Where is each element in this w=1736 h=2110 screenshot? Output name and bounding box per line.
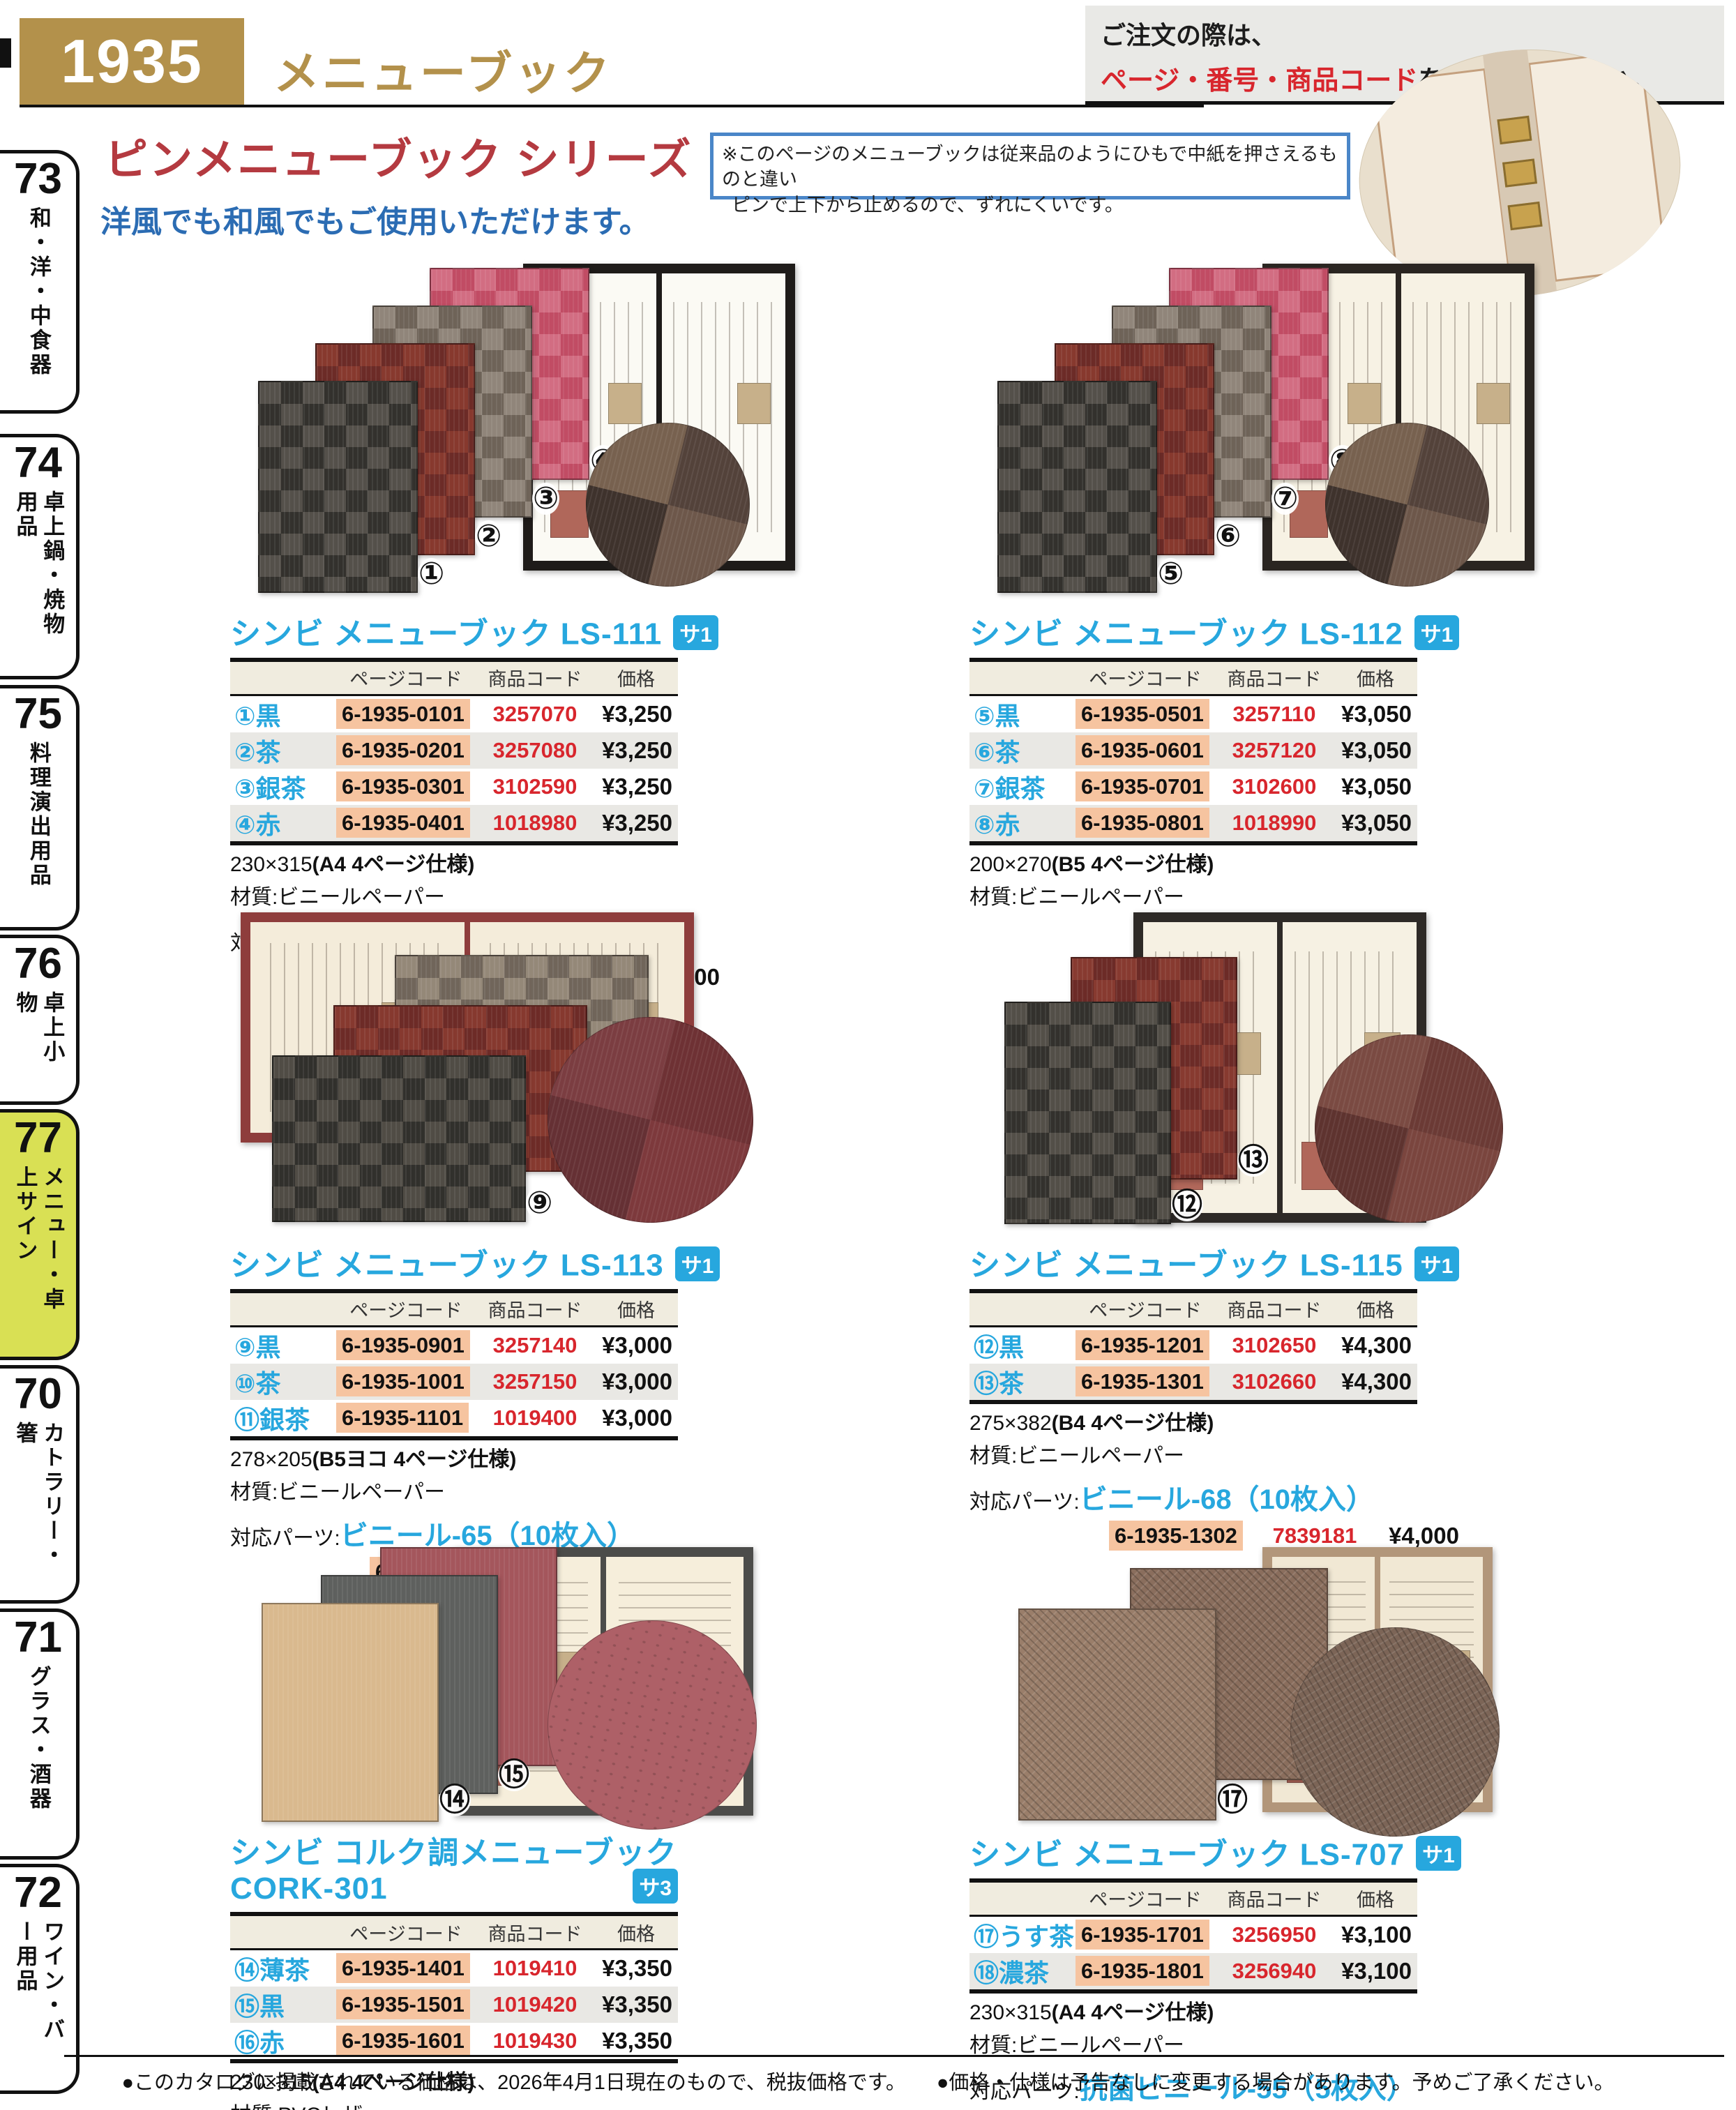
header-page-code: ページコード (1075, 664, 1215, 691)
header-item-code: 商品コード (476, 1919, 594, 1946)
sidebar-tab-70: 70カトラリー・箸 (0, 1365, 80, 1604)
footer-divider (64, 2055, 1724, 2057)
menu-cover-⑭ (262, 1603, 439, 1822)
row-price: ¥3,250 (594, 810, 678, 836)
sidebar-tab-77: 77メニュー・卓上サイン (0, 1109, 80, 1360)
header-price: 価格 (594, 1295, 678, 1322)
header-page-code: ページコード (336, 664, 476, 691)
series-title: ピンメニューブック シリーズ (105, 124, 693, 187)
size-spec: 230×315(A4 4ページ仕様) (230, 851, 788, 878)
row-color-label: ⑮黒 (230, 1987, 336, 2023)
figure-number-label: ⑰ (1216, 1784, 1248, 1816)
row-item-code: 3257070 (476, 702, 594, 727)
tab-number: 71 (14, 1616, 62, 1659)
figure-number-label: ② (475, 520, 502, 552)
row-page-code: 6-1935-0401 (336, 811, 470, 836)
row-color-label: ④赤 (230, 805, 336, 841)
table-header-row: ページコード 商品コード 価格 (230, 1293, 678, 1327)
price-table: ページコード 商品コード 価格 ⑰うす茶6-1935-17013256950¥3… (969, 1878, 1417, 1994)
parts-page-code: 6-1935-1302 (1109, 1523, 1243, 1548)
product-title: シンビ メニューブック LS-707 (969, 1837, 1405, 1871)
material-spec: 材質:PVCレザー (230, 2102, 788, 2110)
tab-label: 卓上鍋・焼物用品 (11, 490, 66, 648)
product-title-row: シンビ コルク調メニューブック CORK-301サ3 (230, 1823, 788, 1906)
row-color-label: ⑦銀茶 (969, 769, 1075, 805)
header-item-code: 商品コード (476, 1295, 594, 1322)
menu-cover-⑨ (272, 1055, 526, 1222)
table-row: ⑭薄茶6-1935-14011019410¥3,350 (230, 1950, 678, 1987)
tab-label: グラス・酒器 (24, 1665, 52, 1828)
tab-number: 75 (14, 693, 62, 736)
material-spec: 材質:ビニールペーパー (969, 884, 1527, 911)
product-card-6: ⑱⑰ シンビ メニューブック LS-707サ1 ページコード 商品コード 価格 … (969, 1547, 1527, 2110)
row-item-code: 3257110 (1215, 702, 1334, 727)
header-price: 価格 (1334, 1885, 1417, 1912)
menu-cover-① (258, 381, 418, 593)
size-spec: 230×315(A4 4ページ仕様) (969, 1999, 1527, 2026)
order-note-red: ページ・番号・商品コード (1101, 66, 1418, 96)
tab-label: 料理演出用品 (24, 741, 52, 899)
row-price: ¥3,050 (1334, 737, 1417, 764)
material-spec: 材質:ビニールペーパー (230, 1479, 788, 1506)
product-photo: ⑱⑰ (969, 1547, 1527, 1819)
header-page-code: ページコード (336, 1919, 476, 1946)
row-color-label: ⑨黒 (230, 1327, 336, 1364)
header-page-code: ページコード (1075, 1885, 1215, 1912)
table-header-row: ページコード 商品コード 価格 (969, 1293, 1417, 1327)
price-table: ページコード 商品コード 価格 ⑤黒6-1935-05013257110¥3,0… (969, 658, 1417, 845)
tab-label: カトラリー・箸 (11, 1422, 66, 1572)
tab-number: 76 (14, 942, 62, 986)
row-item-code: 1018980 (476, 811, 594, 836)
table-row: ⑬茶6-1935-13013102660¥4,300 (969, 1364, 1417, 1400)
row-page-code: 6-1935-0101 (336, 702, 470, 727)
row-item-code: 3257150 (476, 1369, 594, 1394)
table-row: ⑨黒6-1935-09013257140¥3,000 (230, 1327, 678, 1364)
catalog-page: 1935 メニューブック ご注文の際は、 ページ・番号・商品コードをご記入くださ… (0, 0, 1736, 2110)
tab-number: 72 (14, 1871, 62, 1915)
sidebar-tab-76: 76卓上小物 (0, 935, 80, 1105)
header-price: 価格 (1334, 664, 1417, 691)
product-card-1: ④③②① シンビ メニューブック LS-111サ1 ページコード 商品コード 価… (230, 264, 788, 995)
figure-number-label: ⑤ (1157, 558, 1184, 590)
size-spec: 275×382(B4 4ページ仕様) (969, 1410, 1527, 1437)
table-row: ④赤6-1935-04011018980¥3,250 (230, 805, 678, 841)
table-row: ⑥茶6-1935-06013257120¥3,050 (969, 732, 1417, 769)
table-row: ②茶6-1935-02013257080¥3,250 (230, 732, 678, 769)
menu-cover-⑰ (1018, 1608, 1216, 1821)
row-page-code: 6-1935-1801 (1075, 1959, 1209, 1984)
header-item-code: 商品コード (1215, 664, 1334, 691)
row-page-code: 6-1935-1701 (1075, 1922, 1209, 1947)
row-item-code: 3257120 (1215, 738, 1334, 763)
row-item-code: 1019430 (476, 2028, 594, 2054)
product-photo: ⑪⑩⑨ (230, 912, 788, 1230)
product-title-row: シンビ メニューブック LS-115サ1 (969, 1234, 1527, 1283)
sidebar-tab-75: 75料理演出用品 (0, 685, 80, 930)
header-divider (20, 105, 1204, 107)
table-header-row: ページコード 商品コード 価格 (230, 1916, 678, 1950)
row-page-code: 6-1935-0901 (336, 1333, 470, 1358)
table-row: ⑩茶6-1935-10013257150¥3,000 (230, 1364, 678, 1400)
header-item-code: 商品コード (1215, 1885, 1334, 1912)
series-subtitle: 洋風でも和風でもご使用いただけます。 (100, 197, 650, 241)
product-card-2: ⑧⑦⑥⑤ シンビ メニューブック LS-112サ1 ページコード 商品コード 価… (969, 264, 1527, 911)
product-title: シンビ メニューブック LS-113 (230, 1248, 664, 1282)
tab-number: 74 (14, 442, 62, 485)
parts-item-code: 7839181 (1255, 1523, 1374, 1548)
row-item-code: 1019420 (476, 1992, 594, 2017)
pin-feature-note: ※このページのメニューブックは従来品のようにひもで中紙を押さえるものと違い ピン… (710, 133, 1350, 199)
row-price: ¥3,350 (594, 1955, 678, 1982)
tab-number: 70 (14, 1373, 62, 1416)
figure-number-label: ⑮ (498, 1759, 530, 1791)
row-page-code: 6-1935-0301 (336, 774, 470, 799)
figure-number-label: ⑭ (439, 1784, 471, 1816)
footer-note-price: ●このカタログに掲載されている価格は、2026年4月1日現在のもので、税抜価格で… (122, 2072, 906, 2094)
figure-number-label: ⑥ (1214, 520, 1241, 552)
price-table: ページコード 商品コード 価格 ⑭薄茶6-1935-14011019410¥3,… (230, 1912, 678, 2063)
product-card-5: ⑯⑮⑭ シンビ コルク調メニューブック CORK-301サ3 ページコード 商品… (230, 1547, 788, 2110)
row-price: ¥3,100 (1334, 1922, 1417, 1948)
row-page-code: 6-1935-0701 (1075, 774, 1209, 799)
row-price: ¥3,050 (1334, 701, 1417, 728)
tab-label: ワイン・バー用品 (11, 1920, 66, 2063)
row-page-code: 6-1935-0201 (336, 738, 470, 763)
metal-pin (1508, 202, 1543, 230)
row-color-label: ⑱濃茶 (969, 1953, 1075, 1989)
figure-number-label: ③ (532, 483, 559, 515)
table-header-row: ページコード 商品コード 価格 (230, 662, 678, 696)
row-color-label: ⑰うす茶 (969, 1917, 1075, 1953)
row-color-label: ⑭薄茶 (230, 1950, 336, 1987)
tab-number: 77 (14, 1117, 62, 1160)
material-spec: 材質:ビニールペーパー (969, 1442, 1527, 1470)
category-title: メニューブック (273, 36, 612, 103)
row-page-code: 6-1935-1201 (1075, 1333, 1209, 1358)
size-spec: 200×270(B5 4ページ仕様) (969, 851, 1527, 878)
metal-pin (1502, 158, 1537, 187)
table-row: ⑤黒6-1935-05013257110¥3,050 (969, 696, 1417, 732)
product-title-row: シンビ メニューブック LS-112サ1 (969, 603, 1527, 652)
catalog-badge: サ1 (675, 1246, 720, 1281)
material-spec: 材質:ビニールペーパー (230, 884, 788, 911)
row-price: ¥3,050 (1334, 810, 1417, 836)
parts-price: ¥4,000 (1374, 1523, 1465, 1549)
row-item-code: 3102650 (1215, 1333, 1334, 1358)
product-title-row: シンビ メニューブック LS-113サ1 (230, 1234, 788, 1283)
row-page-code: 6-1935-1501 (336, 1992, 470, 2017)
product-title: シンビ メニューブック LS-115 (969, 1248, 1403, 1282)
catalog-badge: サ3 (633, 1869, 678, 1904)
product-title-row: シンビ メニューブック LS-111サ1 (230, 603, 788, 652)
row-price: ¥3,250 (594, 701, 678, 728)
food-photo (737, 383, 771, 425)
sidebar-tab-73: 73和・洋・中食器 (0, 150, 80, 414)
header-item-code: 商品コード (476, 664, 594, 691)
product-title: シンビ メニューブック LS-111 (230, 617, 662, 651)
row-price: ¥4,300 (1334, 1332, 1417, 1359)
table-row: ①黒6-1935-01013257070¥3,250 (230, 696, 678, 732)
row-item-code: 1019410 (476, 1956, 594, 1981)
figure-number-label: ① (418, 558, 445, 590)
row-color-label: ⑫黒 (969, 1327, 1075, 1364)
row-price: ¥3,350 (594, 1991, 678, 2018)
row-color-label: ⑪銀茶 (230, 1400, 336, 1436)
row-color-label: ⑤黒 (969, 696, 1075, 732)
row-item-code: 3102660 (1215, 1369, 1334, 1394)
row-item-code: 3257140 (476, 1333, 594, 1358)
row-page-code: 6-1935-1301 (1075, 1369, 1209, 1394)
order-note-line1: ご注文の際は、 (1101, 15, 1709, 52)
header-price: 価格 (594, 664, 678, 691)
product-title: シンビ コルク調メニューブック CORK-301 (230, 1836, 677, 1906)
sidebar-tab-74: 74卓上鍋・焼物用品 (0, 434, 80, 679)
tab-label: 卓上小物 (11, 991, 66, 1073)
row-color-label: ⑬茶 (969, 1364, 1075, 1400)
product-card-3: ⑪⑩⑨ シンビ メニューブック LS-113サ1 ページコード 商品コード 価格… (230, 912, 788, 1590)
table-row: ⑪銀茶6-1935-11011019400¥3,000 (230, 1400, 678, 1436)
row-price: ¥3,000 (594, 1332, 678, 1359)
table-row: ⑱濃茶6-1935-18013256940¥3,100 (969, 1953, 1417, 1989)
table-row: ⑰うす茶6-1935-17013256950¥3,100 (969, 1917, 1417, 1953)
table-row: ③銀茶6-1935-03013102590¥3,250 (230, 769, 678, 805)
row-item-code: 3102590 (476, 774, 594, 799)
table-row: ⑦銀茶6-1935-07013102600¥3,050 (969, 769, 1417, 805)
row-page-code: 6-1935-1001 (336, 1369, 470, 1394)
product-title-row: シンビ メニューブック LS-707サ1 (969, 1823, 1527, 1873)
print-registration-mark (0, 38, 11, 68)
row-price: ¥3,350 (594, 2028, 678, 2054)
row-color-label: ③銀茶 (230, 769, 336, 805)
size-spec: 278×205(B5ヨコ 4ページ仕様) (230, 1446, 788, 1473)
row-page-code: 6-1935-0601 (1075, 738, 1209, 763)
row-color-label: ⑧赤 (969, 805, 1075, 841)
product-photo: ⑧⑦⑥⑤ (969, 264, 1527, 598)
menu-cover-⑤ (997, 381, 1157, 593)
figure-number-label: ⑬ (1237, 1145, 1269, 1177)
row-item-code: 3102600 (1215, 774, 1334, 799)
pin-note-line1: ※このページのメニューブックは従来品のようにひもで中紙を押さえるものと違い (722, 142, 1338, 193)
price-table: ページコード 商品コード 価格 ⑫黒6-1935-12013102650¥4,3… (969, 1289, 1417, 1404)
footer-note-change: ●価格・仕様は予告なしに変更する場合があります。予めご了承ください。 (937, 2072, 1615, 2094)
product-photo: ⑬⑫ (969, 912, 1527, 1230)
row-item-code: 1019400 (476, 1406, 594, 1431)
row-color-label: ②茶 (230, 732, 336, 769)
header-page-code: ページコード (336, 1295, 476, 1322)
tab-label: メニュー・卓上サイン (11, 1166, 66, 1329)
row-price: ¥3,050 (1334, 774, 1417, 800)
row-color-label: ⑯赤 (230, 2023, 336, 2059)
table-row: ⑮黒6-1935-15011019420¥3,350 (230, 1987, 678, 2023)
tab-number: 73 (14, 158, 62, 201)
row-price: ¥3,100 (1334, 1958, 1417, 1984)
catalog-badge: サ1 (673, 615, 718, 650)
price-table: ページコード 商品コード 価格 ⑨黒6-1935-09013257140¥3,0… (230, 1289, 678, 1440)
page-number-box: 1935 (20, 18, 244, 105)
catalog-badge: サ1 (1414, 615, 1460, 650)
row-price: ¥3,250 (594, 774, 678, 800)
page-number: 1935 (61, 26, 203, 97)
product-card-4: ⑬⑫ シンビ メニューブック LS-115サ1 ページコード 商品コード 価格 … (969, 912, 1527, 1553)
sidebar-tab-72: 72ワイン・バー用品 (0, 1864, 80, 2094)
product-photo: ④③②① (230, 264, 788, 598)
parts-name: ビニール-68（10枚入） (1080, 1484, 1374, 1515)
row-item-code: 1018990 (1215, 811, 1334, 836)
row-price: ¥3,000 (594, 1405, 678, 1431)
metal-pin (1497, 116, 1532, 144)
table-row: ⑯赤6-1935-16011019430¥3,350 (230, 2023, 678, 2059)
row-page-code: 6-1935-1601 (336, 2028, 470, 2054)
figure-number-label: ⑫ (1171, 1189, 1203, 1221)
row-page-code: 6-1935-1101 (336, 1406, 469, 1431)
food-photo (1477, 383, 1510, 425)
row-page-code: 6-1935-0801 (1075, 811, 1209, 836)
table-row: ⑫黒6-1935-12013102650¥4,300 (969, 1327, 1417, 1364)
row-item-code: 3256940 (1215, 1959, 1334, 1984)
row-page-code: 6-1935-0501 (1075, 702, 1209, 727)
product-photo: ⑯⑮⑭ (230, 1547, 788, 1819)
figure-number-label: ⑦ (1271, 483, 1299, 515)
footer: ●このカタログに掲載されている価格は、2026年4月1日現在のもので、税抜価格で… (0, 2066, 1736, 2095)
parts-label: 対応パーツ: (969, 1491, 1080, 1514)
catalog-badge: サ1 (1416, 1836, 1461, 1871)
header-price: 価格 (594, 1919, 678, 1946)
price-table: ページコード 商品コード 価格 ①黒6-1935-01013257070¥3,2… (230, 658, 678, 845)
row-price: ¥3,250 (594, 737, 678, 764)
table-header-row: ページコード 商品コード 価格 (969, 1883, 1417, 1917)
header-item-code: 商品コード (1215, 1295, 1334, 1322)
row-page-code: 6-1935-1401 (336, 1956, 470, 1981)
tab-label: 和・洋・中食器 (24, 206, 52, 382)
row-price: ¥3,000 (594, 1369, 678, 1395)
header-page-code: ページコード (1075, 1295, 1215, 1322)
row-item-code: 3257080 (476, 738, 594, 763)
parts-line: 対応パーツ:ビニール-68（10枚入） (969, 1477, 1527, 1517)
catalog-badge: サ1 (1414, 1246, 1460, 1281)
table-header-row: ページコード 商品コード 価格 (969, 662, 1417, 696)
row-color-label: ⑥茶 (969, 732, 1075, 769)
sidebar-tab-71: 71グラス・酒器 (0, 1608, 80, 1860)
product-title: シンビ メニューブック LS-112 (969, 617, 1403, 651)
row-color-label: ⑩茶 (230, 1364, 336, 1400)
row-price: ¥4,300 (1334, 1369, 1417, 1395)
table-row: ⑧赤6-1935-08011018990¥3,050 (969, 805, 1417, 841)
row-item-code: 3256950 (1215, 1922, 1334, 1947)
pin-note-line2: ピンで上下から止めるので、ずれにくいです。 (722, 193, 1338, 218)
menu-cover-⑫ (1004, 1002, 1171, 1224)
row-color-label: ①黒 (230, 696, 336, 732)
header-price: 価格 (1334, 1295, 1417, 1322)
